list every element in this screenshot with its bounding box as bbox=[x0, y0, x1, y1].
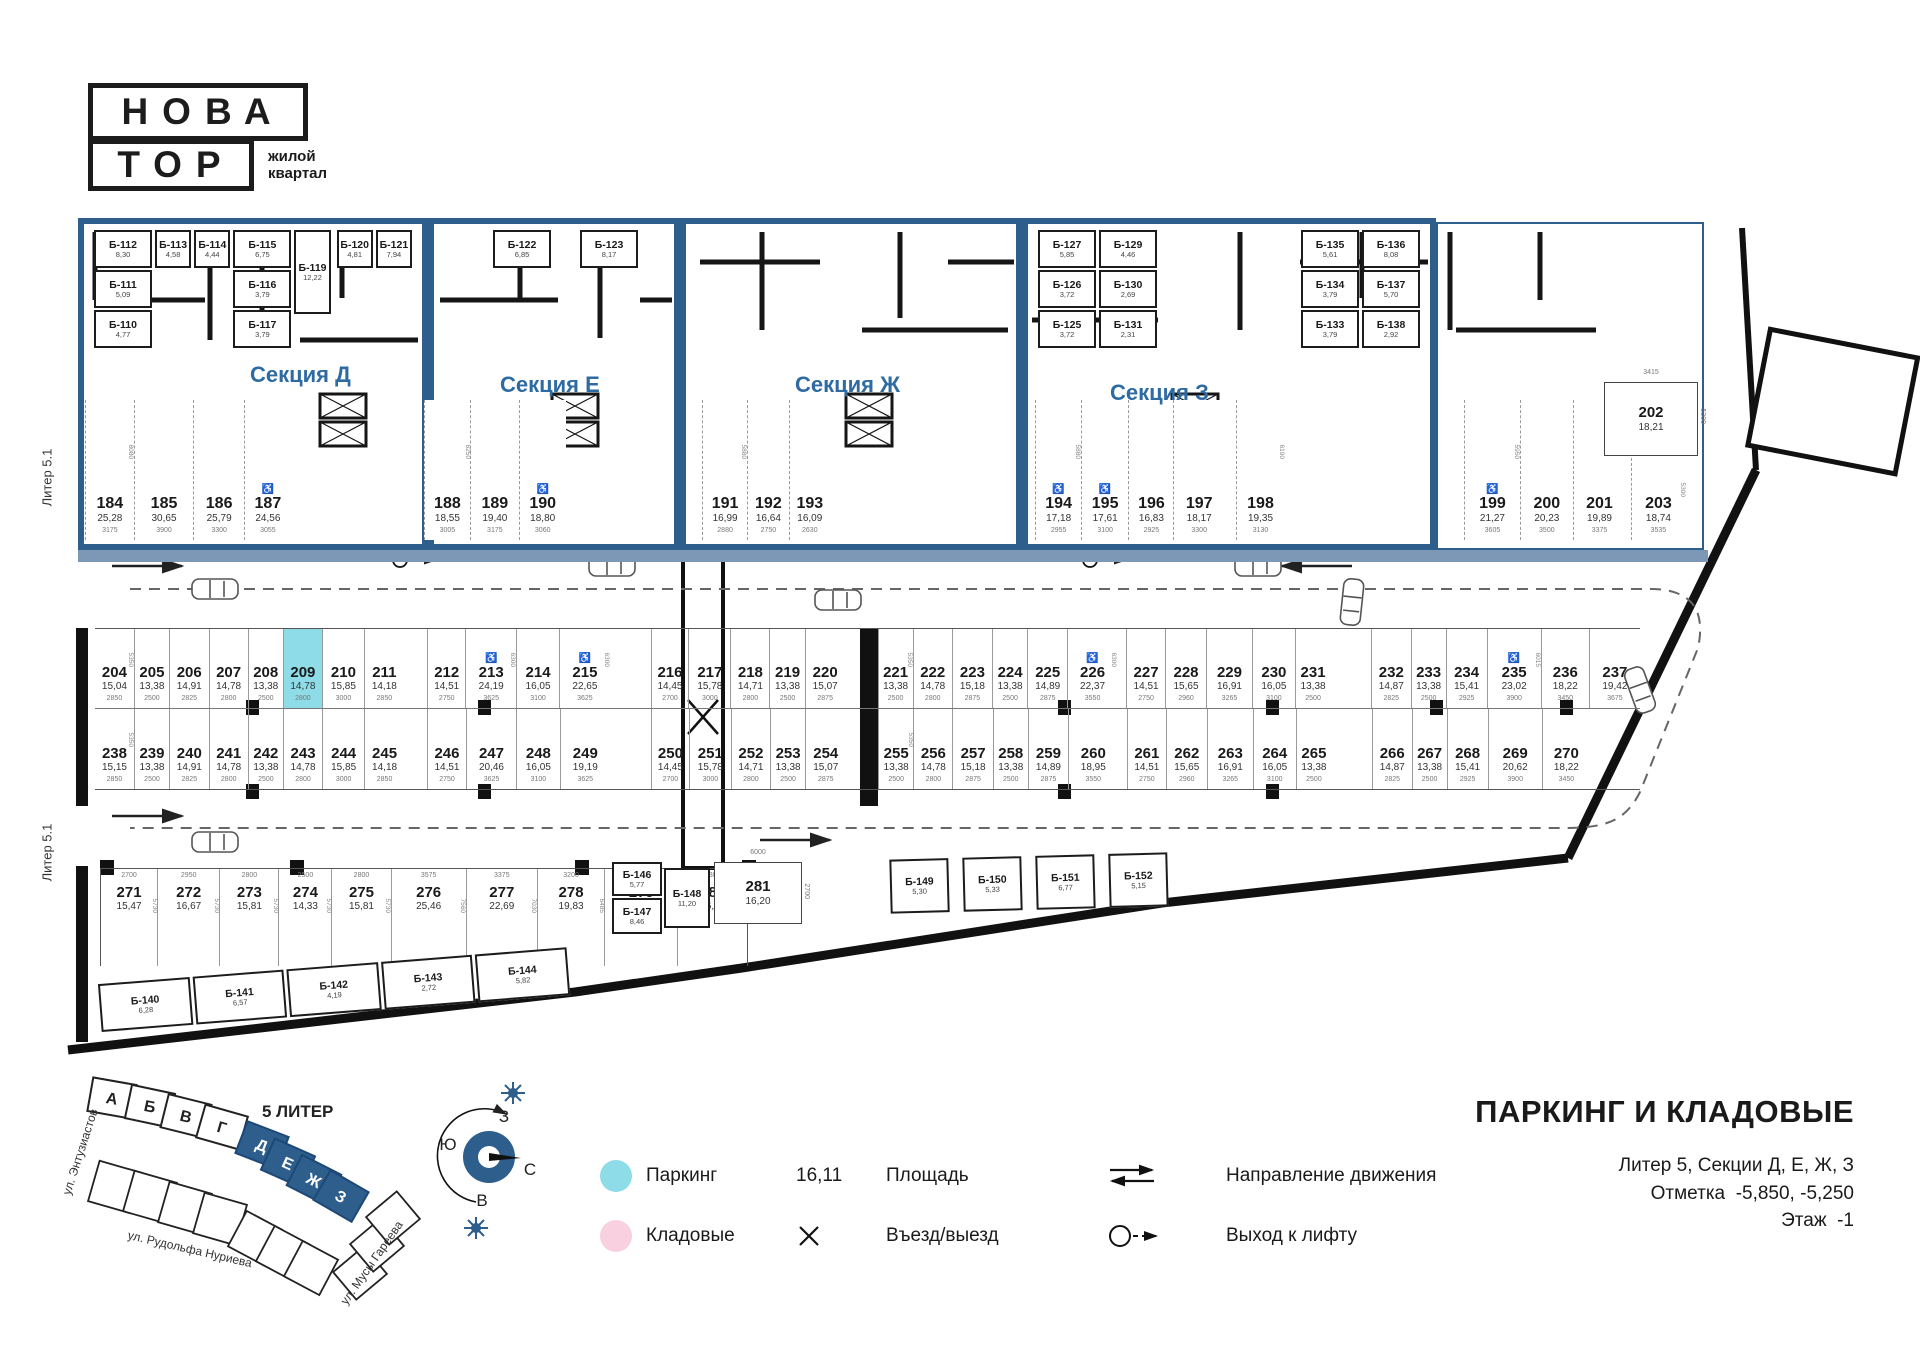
stall-number: 221 bbox=[883, 664, 908, 681]
parking-stall-188[interactable]: 18818,5530056250 bbox=[424, 400, 470, 540]
storage-room-Б-131[interactable]: Б-1312,31 bbox=[1099, 310, 1157, 348]
parking-stall-269[interactable]: 26920,623900 bbox=[1488, 709, 1542, 789]
stall-number: 223 bbox=[960, 664, 985, 681]
stall-width-dim: 2825 bbox=[182, 776, 198, 784]
stall-area: 20,62 bbox=[1503, 762, 1528, 774]
storage-room-Б-115[interactable]: Б-1156,75 bbox=[233, 230, 291, 268]
stall-number: 222 bbox=[920, 664, 945, 681]
parking-stall-226[interactable]: ♿22622,3735506300 bbox=[1067, 629, 1116, 708]
stall-area: 16,99 bbox=[713, 513, 738, 525]
parking-stall-197[interactable]: 19718,173300 bbox=[1173, 400, 1224, 540]
parking-stall-222[interactable]: 22214,782800 bbox=[913, 629, 952, 708]
storage-room-Б-122[interactable]: Б-1226,85 bbox=[493, 230, 551, 268]
stall-number: 216 bbox=[657, 664, 682, 681]
storage-room-Б-141[interactable]: Б-1416,57 bbox=[192, 970, 287, 1025]
parking-stall-189[interactable]: 18919,403175 bbox=[470, 400, 519, 540]
stall-area: 25,46 bbox=[416, 901, 441, 913]
storage-room-Б-142[interactable]: Б-1424,19 bbox=[287, 962, 382, 1017]
stall-width-dim: 3100 bbox=[1266, 695, 1282, 703]
storage-area: 3,79 bbox=[255, 291, 270, 299]
parking-stall-227[interactable]: 22714,512750 bbox=[1126, 629, 1165, 708]
storage-room-Б-130[interactable]: Б-1302,69 bbox=[1099, 270, 1157, 308]
storage-room-Б-138[interactable]: Б-1382,92 bbox=[1362, 310, 1420, 348]
parking-stall-244[interactable]: 24415,853000 bbox=[322, 709, 364, 789]
parking-row-lower: 23815,152850535023913,38250024014,912825… bbox=[95, 708, 1640, 790]
stall-width-dim: 2825 bbox=[181, 695, 197, 703]
stall-width-dim: 2875 bbox=[818, 776, 834, 784]
storage-room-Б-149[interactable]: Б-1495,30 bbox=[889, 858, 949, 914]
storage-room-Б-134[interactable]: Б-1343,79 bbox=[1301, 270, 1359, 308]
stall-width-dim: 3175 bbox=[102, 527, 118, 535]
stall-area: 18,95 bbox=[1081, 762, 1106, 774]
stall-width-dim: 2750 bbox=[439, 776, 455, 784]
stall-number: 277 bbox=[489, 884, 514, 901]
parking-stall-198[interactable]: 19819,3531306190 bbox=[1236, 400, 1284, 540]
parking-stall-187[interactable]: ♿18724,563055 bbox=[244, 400, 291, 540]
storage-room-b147[interactable]: Б-1478,46 bbox=[612, 898, 662, 934]
stall-area: 24,19 bbox=[479, 681, 504, 693]
stall-area: 22,69 bbox=[489, 901, 514, 913]
stall-area: 16,67 bbox=[176, 901, 201, 913]
parking-stall-202[interactable]: 3415 202 18,21 5300 bbox=[1604, 382, 1698, 456]
parking-stall-264[interactable]: 26416,053100 bbox=[1253, 709, 1296, 789]
legend-area-sample: 16,11 bbox=[796, 1165, 886, 1187]
stall-width-dim: 3000 bbox=[336, 695, 352, 703]
stall-number: 187 bbox=[255, 495, 282, 513]
stall-depth-dim: 5350 bbox=[906, 733, 913, 747]
parking-stall-245[interactable]: 24514,182850 bbox=[364, 709, 404, 789]
stall-depth-dim: 6485 bbox=[597, 898, 604, 912]
parking-stall-255[interactable]: 25513,3825005350 bbox=[878, 709, 913, 789]
entry-exit-x-icon bbox=[796, 1223, 886, 1249]
stall-area: 25,28 bbox=[97, 513, 122, 525]
parking-stall-190[interactable]: ♿19018,803060 bbox=[519, 400, 566, 540]
storage-room-Б-150[interactable]: Б-1505,33 bbox=[962, 856, 1022, 912]
stall-number: 209 bbox=[290, 664, 315, 681]
stall-number: 192 bbox=[755, 495, 782, 513]
parking-stall-235[interactable]: ♿23523,0239006015 bbox=[1487, 629, 1541, 708]
stall-number: 227 bbox=[1134, 664, 1159, 681]
parking-stall-266[interactable]: 26614,872825 bbox=[1372, 709, 1412, 789]
parking-stall-239[interactable]: 23913,382500 bbox=[134, 709, 169, 789]
parking-stall-248[interactable]: 24816,053100 bbox=[516, 709, 559, 789]
stall-depth-dim: 5880 bbox=[740, 444, 747, 458]
section-label-z: Секция З bbox=[1110, 380, 1209, 406]
parking-stall-211[interactable]: 21114,182850 bbox=[364, 629, 404, 708]
parking-stall-234[interactable]: 23415,412925 bbox=[1446, 629, 1487, 708]
wheelchair-icon: ♿ bbox=[1486, 485, 1498, 495]
parking-stall-217[interactable]: 21715,783000 bbox=[688, 629, 730, 708]
storage-room-Б-129[interactable]: Б-1294,46 bbox=[1099, 230, 1157, 268]
stall-depth-dim: 5350 bbox=[127, 733, 134, 747]
compass: З Ю С В bbox=[420, 1080, 600, 1260]
liter-label-top: Литер 5.1 bbox=[39, 449, 54, 507]
storage-area: 2,92 bbox=[1384, 331, 1399, 339]
parking-stall-209[interactable]: 20914,782800 bbox=[283, 629, 322, 708]
stall-width-dim: 2850 bbox=[377, 695, 393, 703]
parking-stall-263[interactable]: 26316,913265 bbox=[1207, 709, 1253, 789]
stall-number: 276 bbox=[416, 884, 441, 901]
parking-stall-213[interactable]: ♿21324,1936256300 bbox=[465, 629, 515, 708]
stall-gap bbox=[845, 629, 878, 708]
stall-number: 206 bbox=[177, 664, 202, 681]
stall-depth-dim: 8080 bbox=[127, 444, 134, 458]
stall-area: 20,23 bbox=[1534, 513, 1559, 525]
parking-stall-215[interactable]: ♿21522,6536256300 bbox=[559, 629, 609, 708]
storage-id: Б-133 bbox=[1316, 320, 1345, 331]
stall-width-dim: 2800 bbox=[743, 776, 759, 784]
stall-width-dim: 3175 bbox=[487, 527, 503, 535]
stall-area: 23,02 bbox=[1502, 681, 1527, 693]
storage-room-Б-136[interactable]: Б-1368,08 bbox=[1362, 230, 1420, 268]
stall-number: 273 bbox=[237, 884, 262, 901]
storage-stack: Б-1355,61Б-1343,79Б-1333,79 bbox=[1301, 230, 1359, 348]
stall-area: 22,37 bbox=[1080, 681, 1105, 693]
stall-width-dim: 2800 bbox=[295, 776, 311, 784]
stall-area: 14,33 bbox=[293, 901, 318, 913]
parking-stall-204[interactable]: 20415,0428505350 bbox=[95, 629, 134, 708]
stall-depth-dim: 6300 bbox=[509, 652, 516, 666]
storage-room-Б-119[interactable]: Б-11912,22 bbox=[294, 230, 330, 314]
stall-number: 225 bbox=[1035, 664, 1060, 681]
storage-area: 3,79 bbox=[1323, 331, 1338, 339]
stall-width-dim: 2880 bbox=[717, 527, 733, 535]
storage-area: 5,77 bbox=[630, 881, 645, 889]
parking-stall-200[interactable]: 20020,233500 bbox=[1520, 400, 1574, 540]
stall-area: 13,38 bbox=[998, 762, 1023, 774]
storage-room-Б-135[interactable]: Б-1355,61 bbox=[1301, 230, 1359, 268]
stall-width-dim: 3055 bbox=[260, 527, 276, 535]
stall-width-dim: 2500 bbox=[1002, 695, 1018, 703]
section-label-zh: Секция Ж bbox=[795, 372, 900, 398]
stall-area: 13,38 bbox=[253, 681, 278, 693]
parking-stall-249[interactable]: 24919,193625 bbox=[560, 709, 610, 789]
storage-room-Б-137[interactable]: Б-1375,70 bbox=[1362, 270, 1420, 308]
parking-stall-267[interactable]: 26713,382500 bbox=[1412, 709, 1447, 789]
parking-stall-238[interactable]: 23815,1528505350 bbox=[95, 709, 134, 789]
parking-stall-273[interactable]: 27315,8128005730 bbox=[219, 869, 278, 966]
storage-room-Б-113[interactable]: Б-1134,58 bbox=[155, 230, 191, 268]
parking-stall-214[interactable]: 21416,053100 bbox=[516, 629, 559, 708]
parking-stall-254[interactable]: 25415,072875 bbox=[805, 709, 845, 789]
stall-area: 20,46 bbox=[479, 762, 504, 774]
parking-stall-262[interactable]: 26215,652960 bbox=[1166, 709, 1207, 789]
storage-stack: Б-1156,75Б-1163,79Б-1173,79 bbox=[233, 230, 291, 348]
stall-number: 269 bbox=[1503, 745, 1528, 762]
parking-stall-191[interactable]: 19116,9928805880 bbox=[702, 400, 746, 540]
wheelchair-icon: ♿ bbox=[1086, 654, 1098, 664]
stall-number: 261 bbox=[1134, 745, 1159, 762]
storage-id: Б-126 bbox=[1053, 280, 1082, 291]
storage-room-Б-117[interactable]: Б-1173,79 bbox=[233, 310, 291, 348]
stall-number: 234 bbox=[1454, 664, 1479, 681]
stall-width-dim: 3005 bbox=[440, 527, 456, 535]
parking-stall-233[interactable]: 23313,382500 bbox=[1411, 629, 1446, 708]
parking-stall-270[interactable]: 27018,223450 bbox=[1542, 709, 1590, 789]
parking-stall-205[interactable]: 20513,382500 bbox=[134, 629, 169, 708]
stall-number: 195 bbox=[1092, 495, 1119, 513]
stall-area: 19,83 bbox=[559, 901, 584, 913]
storage-room-Б-143[interactable]: Б-1432,72 bbox=[381, 955, 476, 1010]
parking-stall-229[interactable]: 22916,913265 bbox=[1206, 629, 1252, 708]
stall-area: 14,89 bbox=[1035, 681, 1060, 693]
stall-width-dim: 2500 bbox=[888, 776, 904, 784]
stall-width-dim: 2800 bbox=[925, 695, 941, 703]
stall-area: 14,71 bbox=[738, 681, 763, 693]
parking-stall-199[interactable]: ♿19921,2736055950 bbox=[1464, 400, 1519, 540]
stall-width-dim: 2875 bbox=[817, 695, 833, 703]
parking-stall-272[interactable]: 27216,6729505730 bbox=[157, 869, 219, 966]
parking-stall-268[interactable]: 26815,412925 bbox=[1447, 709, 1488, 789]
stall-number: 254 bbox=[813, 745, 838, 762]
parking-stall-261[interactable]: 26114,512750 bbox=[1127, 709, 1166, 789]
stall-width-dim: 3550 bbox=[1086, 776, 1102, 784]
parking-stall-250[interactable]: 25014,452700 bbox=[651, 709, 689, 789]
parking-stall-271[interactable]: 27115,4727005730 bbox=[101, 869, 157, 966]
parking-stall-276[interactable]: 27625,4635757560 bbox=[391, 869, 466, 966]
stall-number: 262 bbox=[1174, 745, 1199, 762]
stall-width-dim: 2950 bbox=[181, 872, 197, 880]
storage-gap bbox=[554, 230, 577, 231]
stall-width-dim: 3450 bbox=[1557, 695, 1573, 703]
stall-number: 211 bbox=[372, 664, 396, 681]
stall-gap bbox=[1284, 400, 1464, 540]
stall-depth-dim: 5730 bbox=[150, 898, 157, 912]
storage-area: 4,58 bbox=[166, 251, 181, 259]
parking-stall-195[interactable]: ♿19517,613100 bbox=[1081, 400, 1129, 540]
stall-width-dim: 2750 bbox=[1138, 695, 1154, 703]
stall-area: 14,45 bbox=[658, 762, 683, 774]
parking-stall-196[interactable]: 19616,832925 bbox=[1128, 400, 1173, 540]
stall-area: 15,41 bbox=[1454, 681, 1479, 693]
parking-stall-212[interactable]: 21214,512750 bbox=[427, 629, 466, 708]
stall-number: 220 bbox=[813, 664, 838, 681]
parking-stall-265[interactable]: 26513,382500 bbox=[1296, 709, 1331, 789]
stall-number: 275 bbox=[349, 884, 374, 901]
stall-area: 16,05 bbox=[526, 762, 551, 774]
parking-stall-185[interactable]: 18530,653900 bbox=[134, 400, 194, 540]
storage-gap bbox=[641, 230, 664, 231]
parking-stall-240[interactable]: 24014,912825 bbox=[169, 709, 209, 789]
parking-stall-219[interactable]: 21913,382500 bbox=[769, 629, 804, 708]
parking-stall-216[interactable]: 21614,452700 bbox=[651, 629, 689, 708]
parking-stall-184[interactable]: 18425,2831758080 bbox=[85, 400, 134, 540]
stall-number: 200 bbox=[1533, 495, 1560, 513]
stall-number: 255 bbox=[884, 745, 909, 762]
parking-stall-194[interactable]: ♿19417,1829555880 bbox=[1035, 400, 1080, 540]
storage-area: 8,30 bbox=[116, 251, 131, 259]
stall-width-dim: 2850 bbox=[377, 776, 393, 784]
storage-room-Б-140[interactable]: Б-1406,28 bbox=[98, 977, 193, 1032]
parking-stall-236[interactable]: 23618,223450 bbox=[1541, 629, 1589, 708]
parking-stall-192[interactable]: 19216,642750 bbox=[747, 400, 789, 540]
stall-area: 19,40 bbox=[482, 513, 507, 525]
parking-stall-218[interactable]: 21814,712800 bbox=[730, 629, 769, 708]
stall-area: 14,78 bbox=[920, 681, 945, 693]
storage-room-Б-116[interactable]: Б-1163,79 bbox=[233, 270, 291, 308]
stall-number: 240 bbox=[177, 745, 202, 762]
stall-width-dim: 2500 bbox=[298, 872, 314, 880]
parking-stall-281[interactable]: 6000 281 16,20 2700 bbox=[714, 862, 802, 924]
storage-room-Б-123[interactable]: Б-1238,17 bbox=[580, 230, 638, 268]
wheelchair-icon: ♿ bbox=[579, 654, 591, 664]
storage-gap bbox=[444, 230, 490, 231]
parking-stall-275[interactable]: 27515,8128005730 bbox=[331, 869, 390, 966]
storage-id: Б-112 bbox=[109, 240, 137, 251]
parking-stall-246[interactable]: 24614,512750 bbox=[427, 709, 466, 789]
stall-area: 22,65 bbox=[572, 681, 597, 693]
storage-room-Б-144[interactable]: Б-1445,82 bbox=[475, 947, 570, 1002]
storage-room-Б-152[interactable]: Б-1525,15 bbox=[1108, 852, 1168, 908]
stall-width-dim: 3625 bbox=[577, 695, 593, 703]
stall-width-dim: 3130 bbox=[1253, 527, 1269, 535]
parking-stall-260[interactable]: 26018,953550 bbox=[1068, 709, 1117, 789]
parking-stall-259[interactable]: 25914,892875 bbox=[1028, 709, 1068, 789]
storage-room-Б-110[interactable]: Б-1104,77 bbox=[94, 310, 152, 348]
storage-room-Б-125[interactable]: Б-1253,72 bbox=[1038, 310, 1096, 348]
stall-width-dim: 3625 bbox=[483, 695, 499, 703]
stall-area: 16,64 bbox=[756, 513, 781, 525]
stall-depth-dim: 5350 bbox=[906, 652, 913, 666]
stall-gap bbox=[845, 709, 878, 789]
storage-room-Б-120[interactable]: Б-1204,81 bbox=[337, 230, 373, 268]
floor-label: Этаж bbox=[1781, 1210, 1826, 1231]
stall-number: 256 bbox=[921, 745, 946, 762]
stall-number: 185 bbox=[151, 495, 178, 513]
parking-stall-243[interactable]: 24314,782800 bbox=[283, 709, 322, 789]
storage-room-Б-121[interactable]: Б-1217,94 bbox=[376, 230, 412, 268]
parking-stall-258[interactable]: 25813,382500 bbox=[993, 709, 1028, 789]
stall-depth-dim: 6300 bbox=[1110, 652, 1117, 666]
stall-number: 226 bbox=[1080, 664, 1105, 681]
stall-number: 194 bbox=[1045, 495, 1072, 513]
storage-gap bbox=[1160, 230, 1298, 231]
liter-label-bottom: Литер 5.1 bbox=[39, 824, 54, 882]
storage-room-b148[interactable]: Б-14811,20 bbox=[664, 868, 710, 928]
storage-area: 5,15 bbox=[1131, 882, 1146, 890]
parking-stall-247[interactable]: 24720,463625 bbox=[466, 709, 516, 789]
parking-stall-225[interactable]: 22514,892875 bbox=[1027, 629, 1067, 708]
storage-room-Б-151[interactable]: Б-1516,77 bbox=[1035, 854, 1095, 910]
stall-width-dim: 2960 bbox=[1179, 776, 1195, 784]
stall-depth-dim: 5300 bbox=[1698, 408, 1706, 424]
stall-number: 272 bbox=[176, 884, 201, 901]
parking-stall-230[interactable]: 23016,053100 bbox=[1252, 629, 1295, 708]
storage-id: Б-138 bbox=[1377, 320, 1406, 331]
parking-stall-220[interactable]: 22015,072875 bbox=[805, 629, 845, 708]
parking-stall-207[interactable]: 20714,782800 bbox=[209, 629, 248, 708]
parking-stall-206[interactable]: 20614,912825 bbox=[169, 629, 209, 708]
stall-gap bbox=[1330, 629, 1371, 708]
section-label-e: Секция Е bbox=[500, 372, 600, 398]
parking-row-upper: 20415,042850535020513,38250020614,912825… bbox=[95, 628, 1640, 708]
storage-room-Б-111[interactable]: Б-1115,09 bbox=[94, 270, 152, 308]
stall-width-dim: 2750 bbox=[761, 527, 777, 535]
stall-width-dim: 2825 bbox=[1384, 695, 1400, 703]
stall-number: 241 bbox=[216, 745, 241, 762]
parking-stall-251[interactable]: 25115,783000 bbox=[689, 709, 731, 789]
stall-gap bbox=[291, 400, 424, 540]
parking-stall-203[interactable]: 20318,7435355300 bbox=[1631, 458, 1685, 540]
parking-stall-256[interactable]: 25614,782800 bbox=[913, 709, 952, 789]
stall-width-dim: 3900 bbox=[1507, 776, 1523, 784]
stall-area: 15,85 bbox=[331, 681, 356, 693]
stall-area: 18,74 bbox=[1646, 513, 1671, 525]
stall-area: 15,78 bbox=[697, 681, 722, 693]
stall-width-dim: 2875 bbox=[965, 776, 981, 784]
stall-area: 13,38 bbox=[883, 681, 908, 693]
storage-area: 2,31 bbox=[1121, 331, 1136, 339]
parking-stall-224[interactable]: 22413,382500 bbox=[992, 629, 1027, 708]
stall-number: 233 bbox=[1416, 664, 1441, 681]
stall-area: 30,65 bbox=[152, 513, 177, 525]
stall-depth-dim: 2700 bbox=[802, 883, 810, 899]
legend: Паркинг 16,11 Площадь Направление движен… bbox=[600, 1146, 1400, 1266]
stall-width-dim: 2800 bbox=[743, 695, 759, 703]
parking-stall-208[interactable]: 20813,382500 bbox=[248, 629, 283, 708]
parking-stall-241[interactable]: 24114,782800 bbox=[209, 709, 248, 789]
stall-number: 264 bbox=[1262, 745, 1287, 762]
stall-width-dim: 2955 bbox=[1051, 527, 1067, 535]
parking-stall-210[interactable]: 21015,853000 bbox=[322, 629, 364, 708]
stall-width-dim: 2960 bbox=[1178, 695, 1194, 703]
storage-id: Б-110 bbox=[109, 320, 137, 331]
storage-area: 8,17 bbox=[602, 251, 617, 259]
parking-stall-242[interactable]: 24213,382500 bbox=[248, 709, 283, 789]
stall-area: 16,91 bbox=[1217, 681, 1242, 693]
storage-room-Б-114[interactable]: Б-1144,44 bbox=[194, 230, 230, 268]
stall-number: 251 bbox=[698, 745, 723, 762]
storage-id: Б-130 bbox=[1114, 280, 1143, 291]
stall-area: 14,18 bbox=[372, 681, 397, 693]
parking-stall-253[interactable]: 25313,382500 bbox=[770, 709, 805, 789]
storage-room-Б-133[interactable]: Б-1333,79 bbox=[1301, 310, 1359, 348]
parking-stall-231[interactable]: 23113,382500 bbox=[1295, 629, 1330, 708]
stall-width-dim: 2500 bbox=[888, 695, 904, 703]
storage-room-Б-126[interactable]: Б-1263,72 bbox=[1038, 270, 1096, 308]
stall-number: 265 bbox=[1301, 745, 1326, 762]
parking-stall-223[interactable]: 22315,182875 bbox=[952, 629, 992, 708]
stall-number: 270 bbox=[1554, 745, 1579, 762]
parking-stall-237[interactable]: 23719,423675 bbox=[1589, 629, 1640, 708]
parking-stall-232[interactable]: 23214,872825 bbox=[1371, 629, 1411, 708]
parking-stall-221[interactable]: 22113,3825005350 bbox=[878, 629, 913, 708]
storage-id: Б-116 bbox=[248, 280, 276, 291]
storage-room-b146[interactable]: Б-1465,77 bbox=[612, 862, 662, 896]
storage-room-Б-127[interactable]: Б-1275,85 bbox=[1038, 230, 1096, 268]
stall-width-dim: 3100 bbox=[530, 695, 546, 703]
parking-stall-186[interactable]: 18625,793300 bbox=[193, 400, 244, 540]
parking-stall-252[interactable]: 25214,712800 bbox=[731, 709, 770, 789]
mark-label: Отметка bbox=[1651, 1183, 1725, 1204]
mark-value: -5,850, -5,250 bbox=[1736, 1183, 1854, 1204]
stall-number: 196 bbox=[1138, 495, 1165, 513]
parking-stall-228[interactable]: 22815,652960 bbox=[1165, 629, 1206, 708]
storage-row-bottom-right: Б-1495,30Б-1505,33Б-1516,77Б-1525,15 bbox=[889, 852, 1168, 915]
parking-stall-193[interactable]: 19316,092630 bbox=[789, 400, 830, 540]
storage-room-Б-112[interactable]: Б-1128,30 bbox=[94, 230, 152, 268]
stall-area: 15,85 bbox=[331, 762, 356, 774]
parking-stall-274[interactable]: 27414,3325005730 bbox=[278, 869, 331, 966]
stall-number: 184 bbox=[97, 495, 124, 513]
stall-depth-dim: 5730 bbox=[324, 898, 331, 912]
storage-id: Б-135 bbox=[1316, 240, 1345, 251]
stall-width-dim: 2850 bbox=[107, 776, 123, 784]
stall-gap bbox=[610, 709, 651, 789]
title-block: ПАРКИНГ И КЛАДОВЫЕ Литер 5, Секции Д, Е,… bbox=[1475, 1094, 1854, 1235]
stall-gap bbox=[830, 400, 1036, 540]
parking-stall-257[interactable]: 25715,182875 bbox=[952, 709, 992, 789]
